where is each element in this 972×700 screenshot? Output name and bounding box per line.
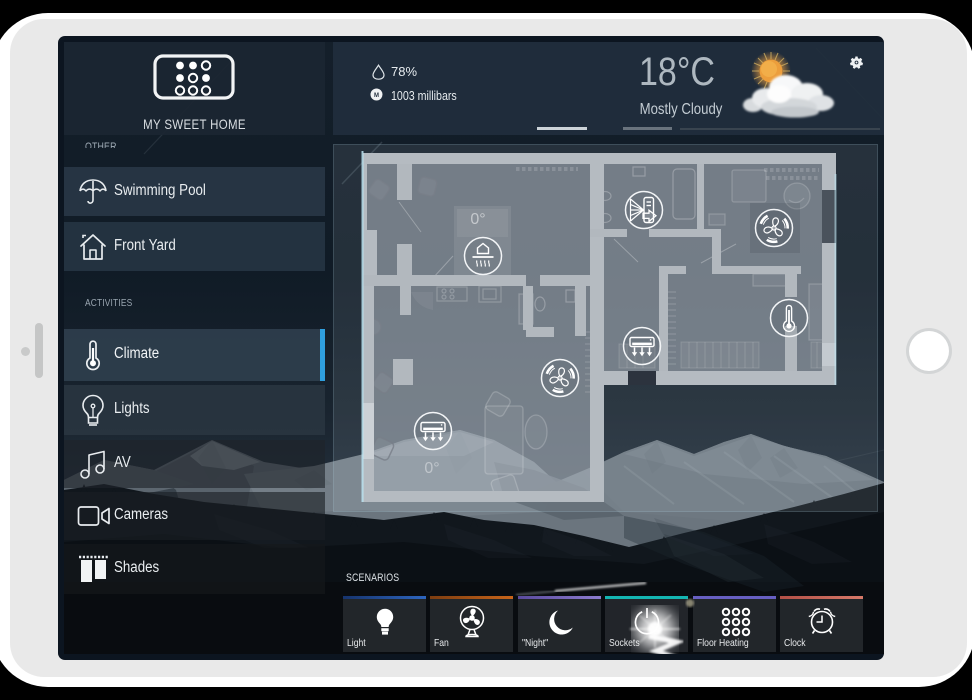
- svg-text:0°: 0°: [470, 211, 485, 228]
- svg-text:0°: 0°: [424, 460, 439, 477]
- svg-text:M: M: [374, 93, 379, 99]
